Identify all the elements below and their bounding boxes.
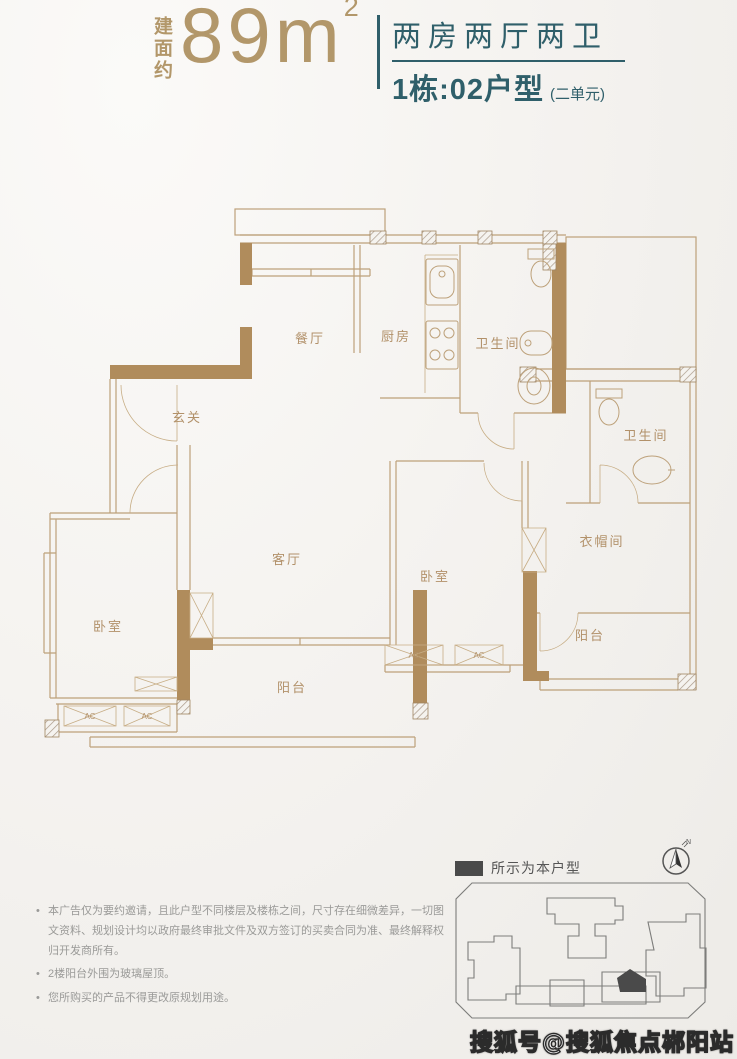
- plan-walls-solid: [110, 243, 566, 703]
- area-value: 89m2: [180, 0, 359, 74]
- plan-shaft-boxes: [135, 528, 546, 691]
- layout-type: 两房两厅两卫: [392, 13, 632, 55]
- ac-label-4: AC: [473, 651, 484, 660]
- compass-needle-light: [670, 849, 676, 868]
- room-label-balcony-right: 阳台: [575, 628, 605, 643]
- compass-north-label: N: [686, 839, 691, 846]
- legend-swatch: [455, 861, 483, 876]
- room-label-dining: 餐厅: [295, 331, 325, 346]
- watermark: 搜狐号@搜狐焦点郴阳站: [470, 1023, 734, 1057]
- room-label-kitchen: 厨房: [381, 329, 411, 344]
- floor-plan: AC AC AC AC: [30, 193, 710, 768]
- room-label-living: 客厅: [272, 552, 302, 567]
- legend-label: 所示为本户型: [491, 858, 581, 878]
- room-label-balcony-main: 阳台: [277, 680, 307, 695]
- area-number: 89: [180, 0, 275, 79]
- unit-title: 1栋:02户型(二单元): [392, 66, 632, 108]
- plan-columns-hatched: [45, 231, 696, 737]
- ac-label-3: AC: [408, 651, 419, 660]
- ac-label-2: AC: [141, 712, 152, 721]
- room-label-cloakroom: 衣帽间: [579, 534, 624, 549]
- room-label-bath-right: 卫生间: [623, 428, 668, 443]
- room-label-entry: 玄关: [172, 410, 202, 425]
- room-label-bedroom-left: 卧室: [93, 619, 123, 634]
- ac-label-1: AC: [84, 712, 95, 721]
- room-label-bedroom-main: 卧室: [420, 569, 450, 584]
- plan-fixtures: [426, 249, 675, 484]
- header-divider: [377, 15, 380, 89]
- disclaimer-item: 本广告仅为要约邀请，且此户型不同楼层及楼栋之间，尺寸存在细微差异，一切图文资料、…: [36, 902, 444, 961]
- area-prefix-label: 建面约: [148, 16, 175, 82]
- disclaimer-item: 您所购买的产品不得更改原规划用途。: [36, 989, 444, 1009]
- unit-subtitle: (二单元): [550, 86, 605, 103]
- unit-title-text: 1栋:02户型: [392, 74, 544, 106]
- poster-page: 建面约 89m2 两房两厅两卫 1栋:02户型(二单元): [0, 0, 737, 1059]
- disclaimer-item: 2楼阳台外围为玻璃屋顶。: [36, 965, 444, 985]
- area-unit: m: [275, 0, 344, 79]
- header-right: 两房两厅两卫 1栋:02户型(二单元): [392, 13, 632, 108]
- compass-needle-dark: [676, 849, 682, 868]
- header-rule: [392, 60, 625, 62]
- plan-walls-thin: [44, 209, 696, 747]
- disclaimer-notes: 本广告仅为要约邀请，且此户型不同楼层及楼栋之间，尺寸存在细微差异，一切图文资料、…: [36, 902, 444, 1013]
- compass: N: [655, 836, 699, 880]
- area-exponent: 2: [344, 0, 359, 22]
- room-label-bath-top: 卫生间: [475, 336, 520, 351]
- keyplan-legend: 所示为本户型: [455, 858, 581, 878]
- keyplan-map: [452, 880, 710, 1022]
